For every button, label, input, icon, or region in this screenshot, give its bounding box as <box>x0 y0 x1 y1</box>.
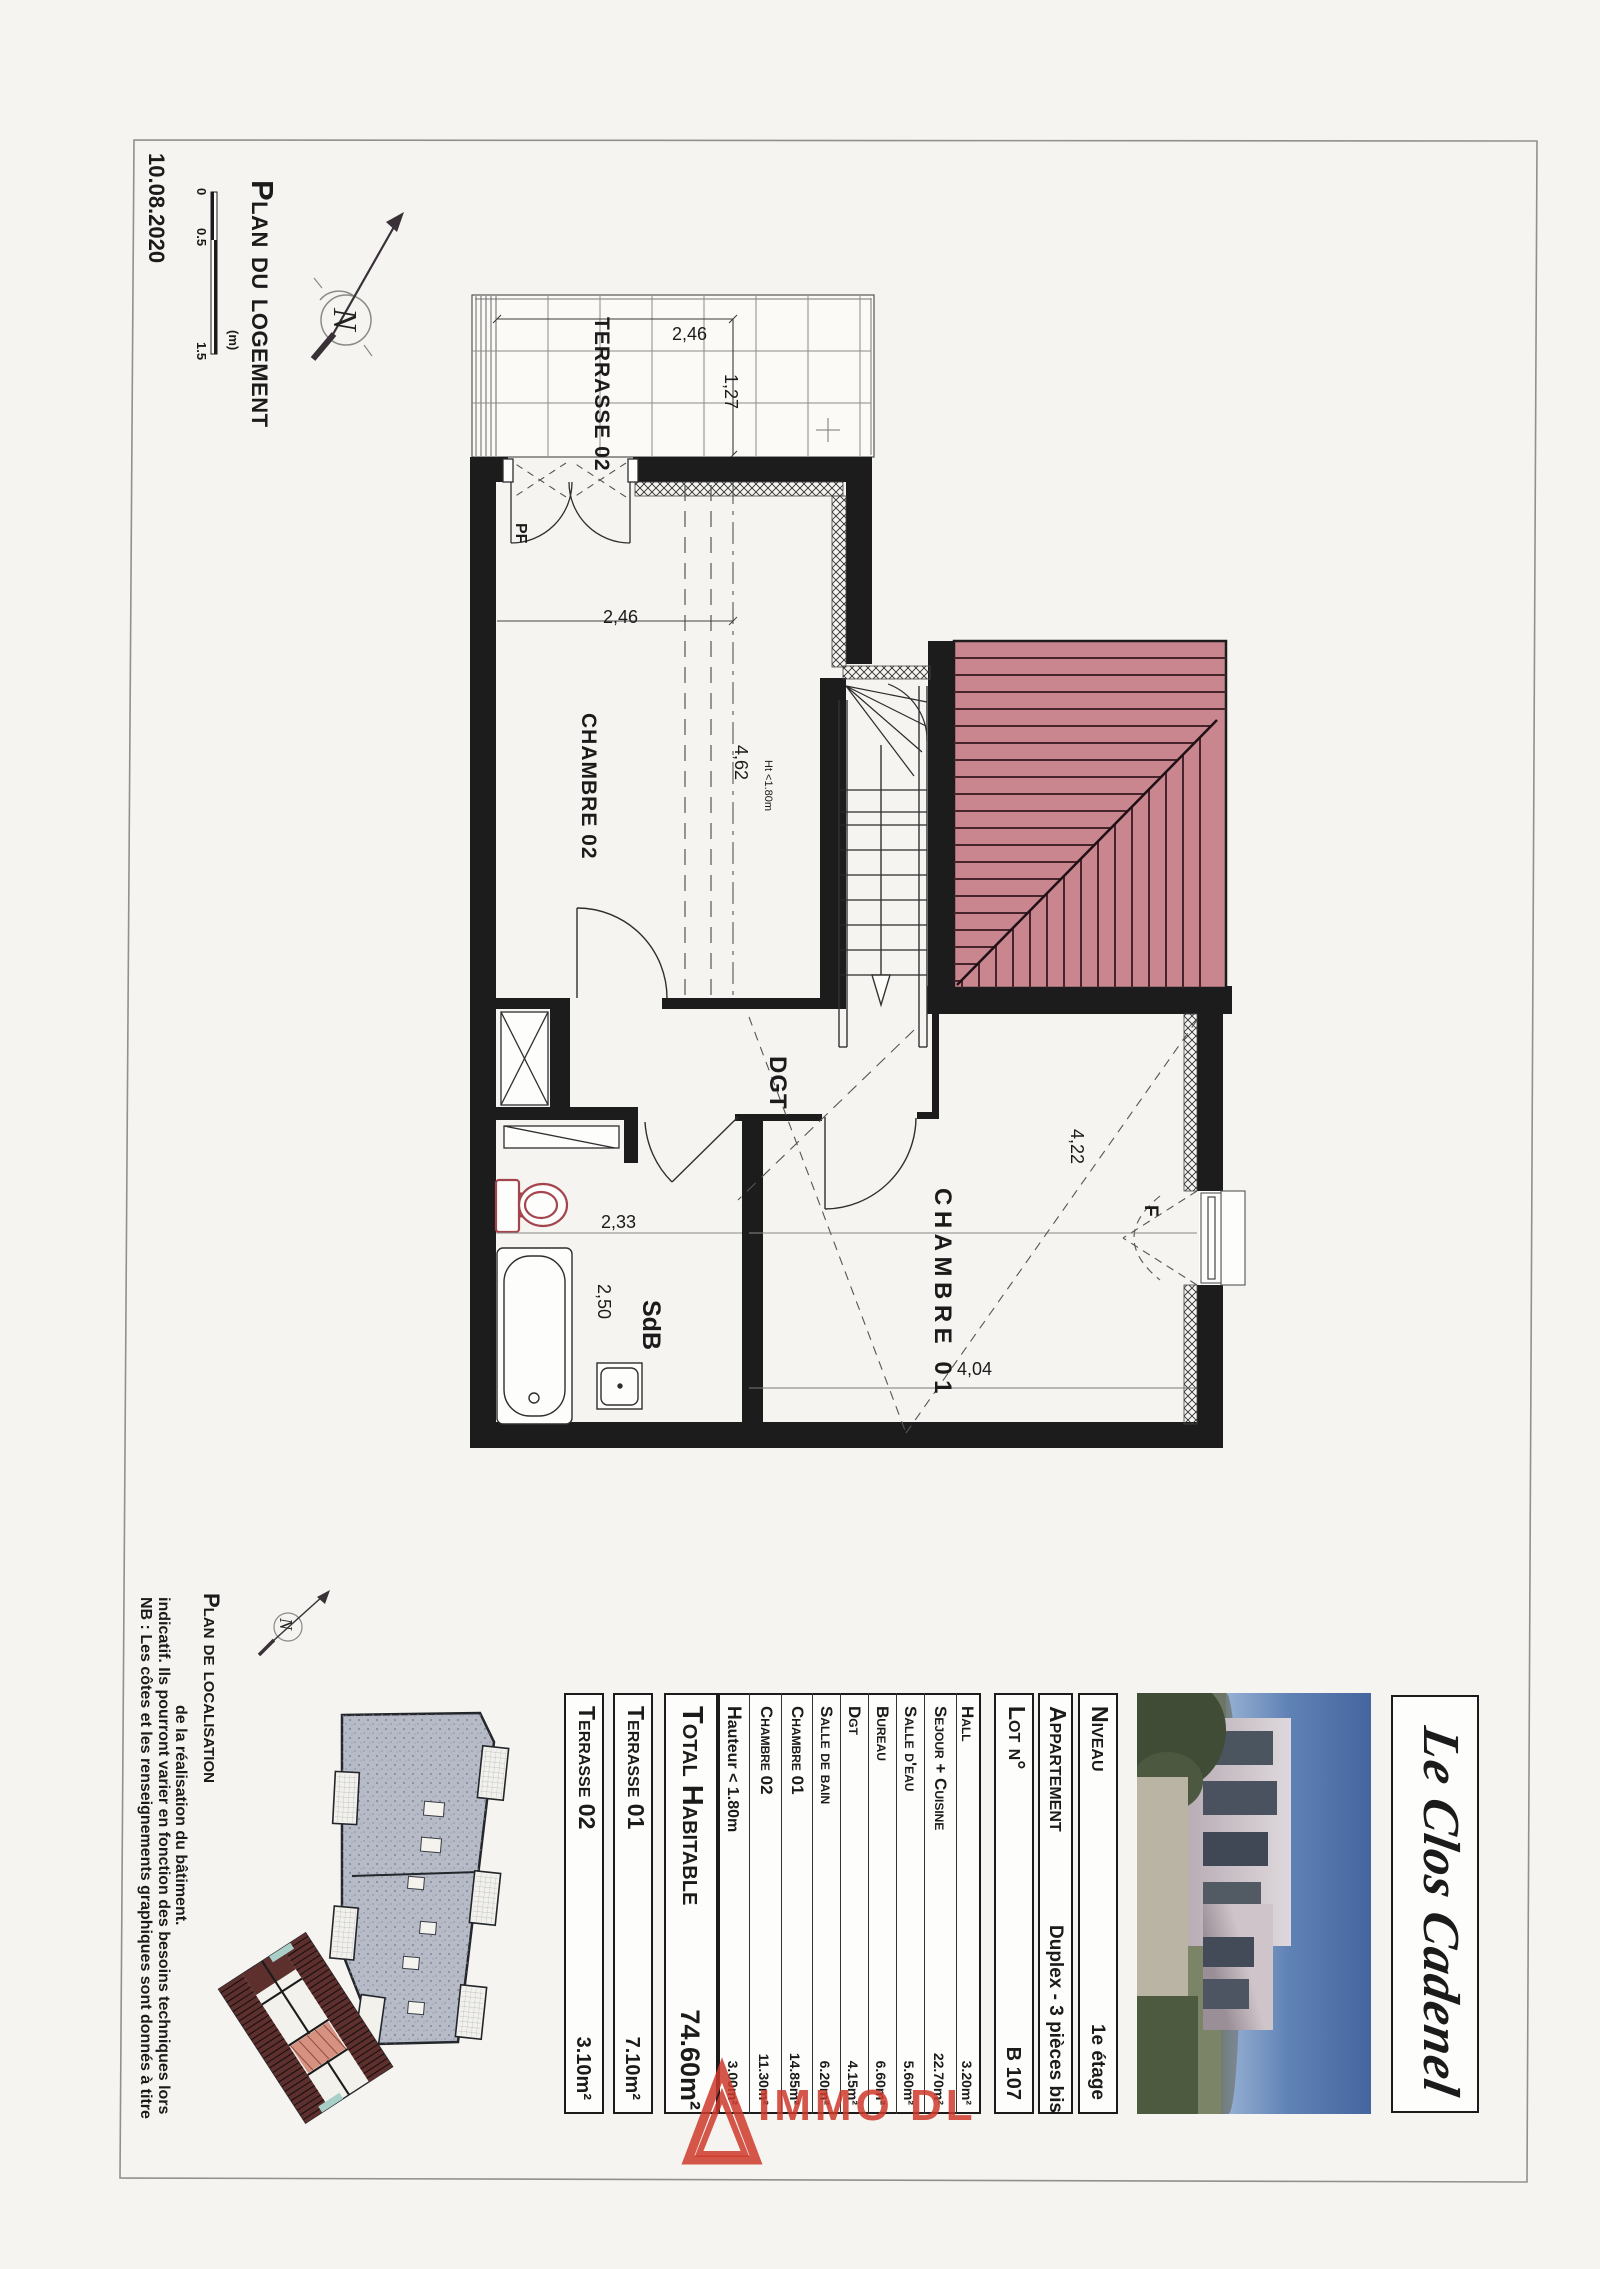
svg-text:N: N <box>276 1617 296 1631</box>
svg-text:N: N <box>326 307 363 333</box>
